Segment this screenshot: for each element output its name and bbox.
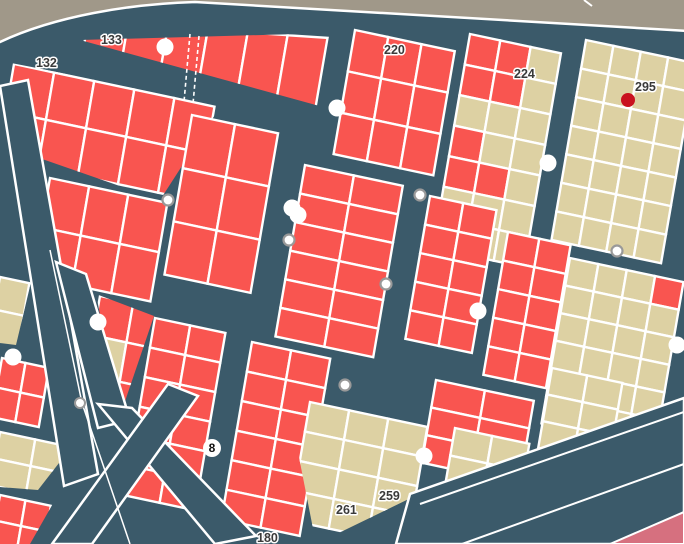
- block-label: 133: [101, 33, 122, 47]
- poi-marker-white[interactable]: [470, 303, 487, 320]
- route-badge[interactable]: 8: [203, 439, 221, 457]
- parcel[interactable]: [217, 177, 269, 239]
- parcel[interactable]: [634, 229, 666, 263]
- node-marker[interactable]: [415, 190, 426, 201]
- parcel[interactable]: [414, 44, 454, 92]
- node-marker[interactable]: [612, 246, 623, 257]
- poi-marker-white[interactable]: [540, 155, 557, 172]
- poi-marker-white[interactable]: [416, 448, 433, 465]
- parcel[interactable]: [407, 86, 447, 134]
- block-label: 220: [384, 43, 405, 57]
- parcel[interactable]: [226, 124, 278, 186]
- route-badge-label: 8: [209, 441, 216, 455]
- survey-line-vertex[interactable]: [75, 398, 85, 408]
- selected-poi-marker[interactable]: [621, 93, 635, 107]
- parcel[interactable]: [483, 346, 519, 381]
- poi-marker-white[interactable]: [329, 100, 346, 117]
- poi-marker-white[interactable]: [290, 207, 307, 224]
- block-label: 224: [514, 67, 535, 81]
- poi-marker-white[interactable]: [90, 314, 107, 331]
- block-label: 295: [635, 80, 656, 94]
- parcel[interactable]: [439, 317, 477, 353]
- block-label: 259: [379, 489, 400, 503]
- block-label: 180: [257, 531, 278, 544]
- node-marker[interactable]: [163, 195, 174, 206]
- parcel[interactable]: [400, 127, 440, 175]
- block-label: 261: [336, 503, 357, 517]
- map-canvas[interactable]: 8133132220224295259261180: [0, 0, 684, 544]
- parcel[interactable]: [120, 195, 168, 253]
- poi-marker-white[interactable]: [5, 349, 22, 366]
- parcel[interactable]: [405, 310, 443, 346]
- city-block: [0, 358, 49, 427]
- node-marker[interactable]: [381, 279, 392, 290]
- node-marker[interactable]: [284, 235, 295, 246]
- block-label: 132: [36, 56, 57, 70]
- parcel[interactable]: [515, 353, 551, 388]
- poi-marker-white[interactable]: [157, 39, 174, 56]
- map-viewport[interactable]: 8133132220224295259261180: [0, 0, 684, 544]
- parcel[interactable]: [15, 393, 44, 428]
- node-marker[interactable]: [340, 380, 351, 391]
- parcel[interactable]: [111, 244, 159, 302]
- parcel[interactable]: [207, 231, 259, 293]
